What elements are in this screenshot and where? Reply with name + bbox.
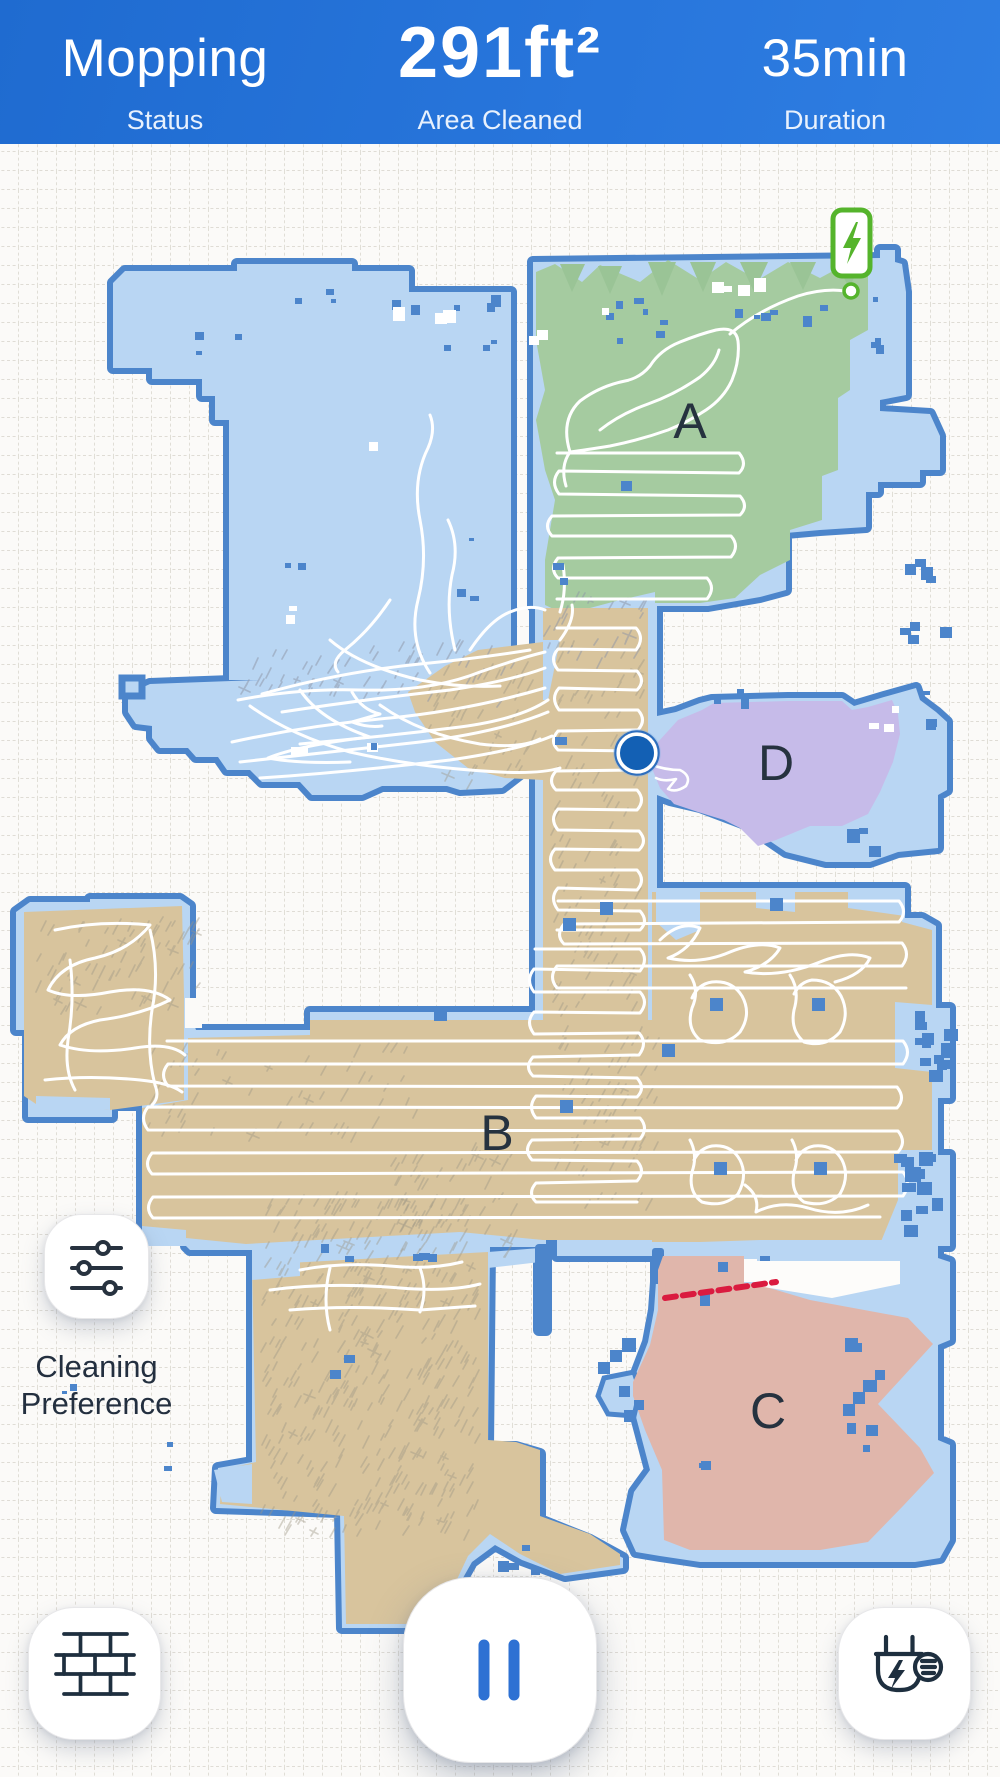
svg-text:B: B bbox=[480, 1105, 513, 1161]
svg-text:C: C bbox=[750, 1383, 786, 1439]
svg-text:A: A bbox=[673, 393, 707, 449]
svg-text:D: D bbox=[758, 735, 794, 791]
